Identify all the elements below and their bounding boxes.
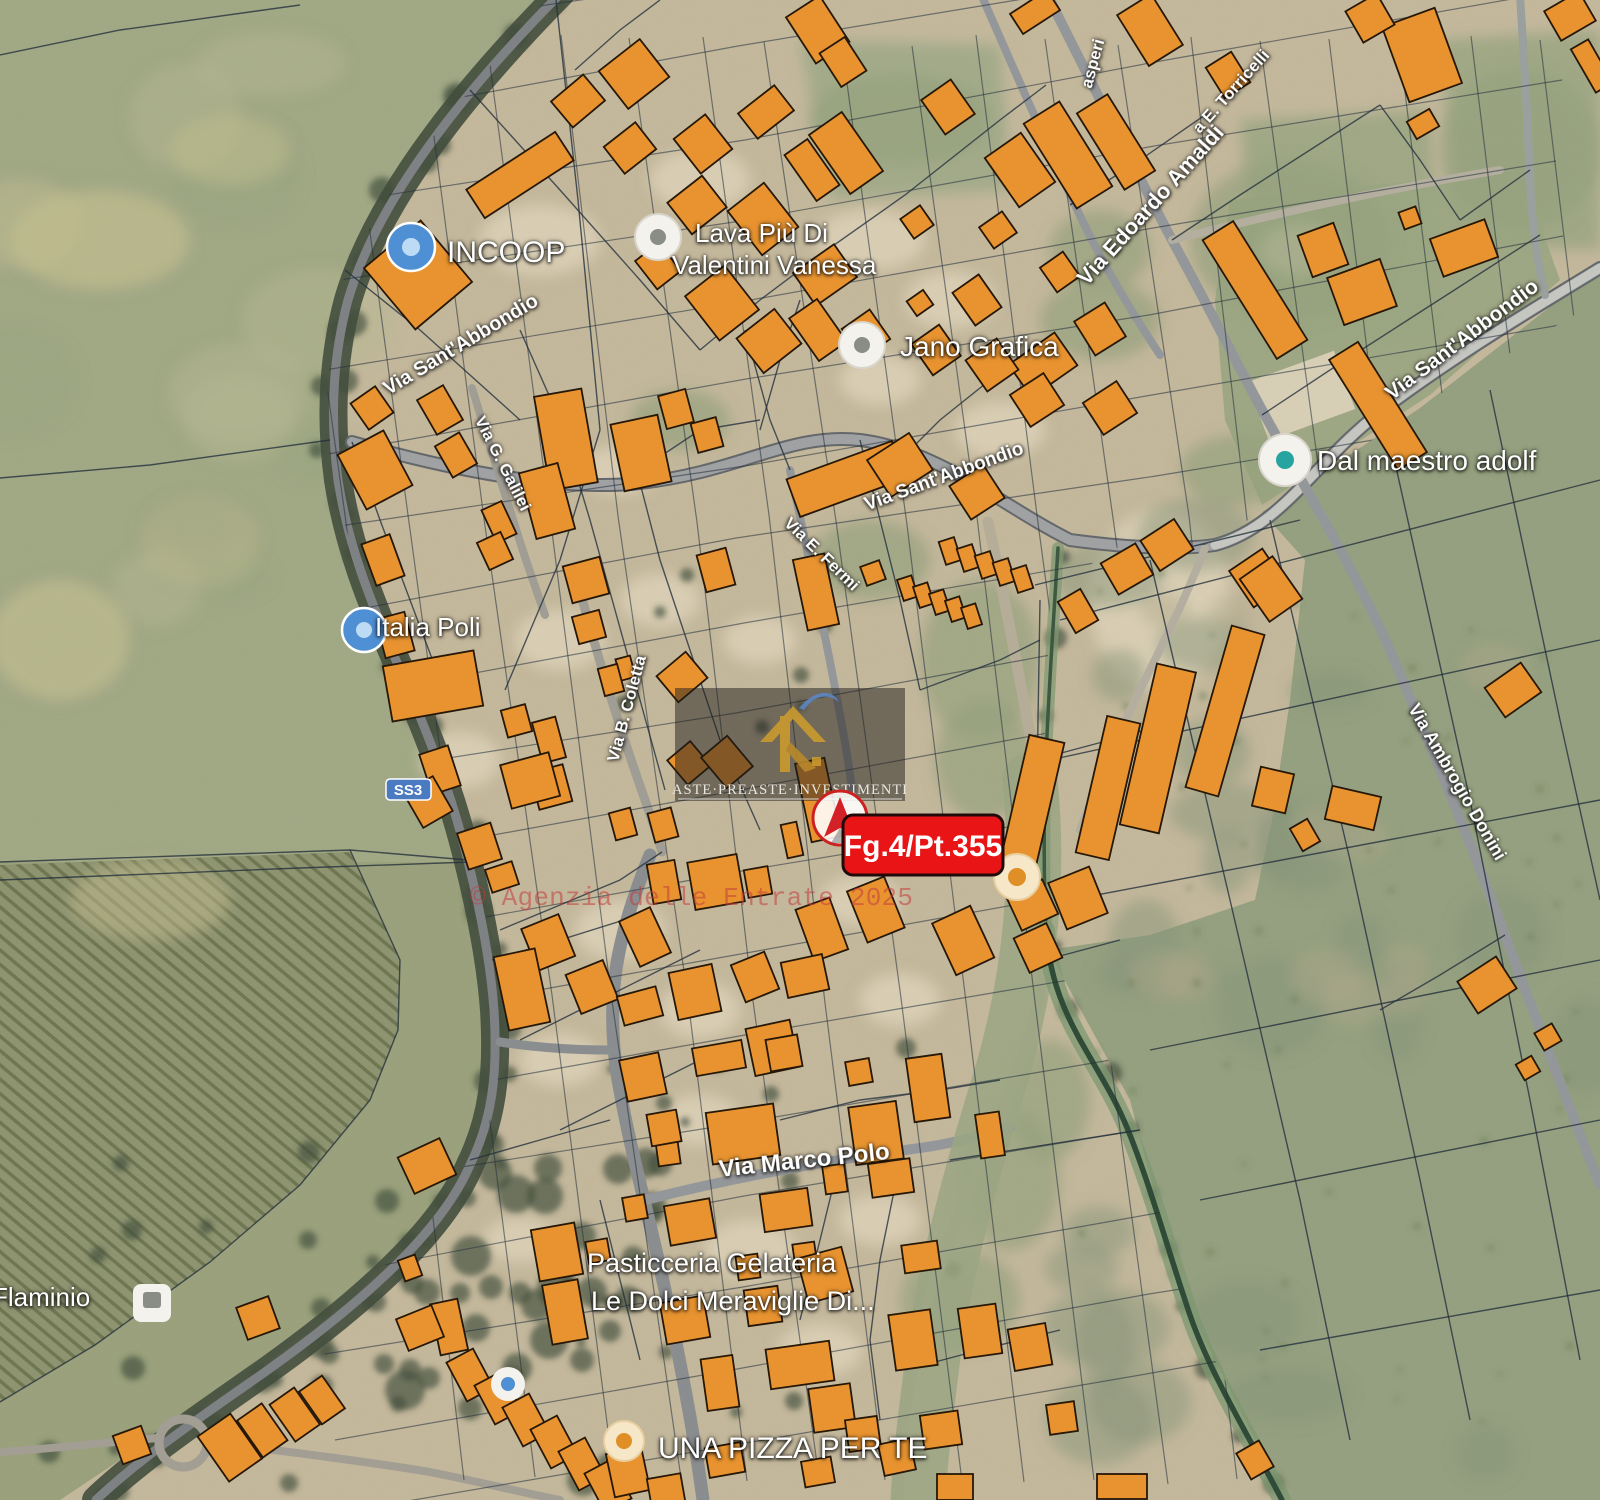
svg-text:Jano Grafica: Jano Grafica — [900, 331, 1059, 362]
svg-text:Valentini Vanessa: Valentini Vanessa — [672, 250, 877, 280]
svg-text:© Agenzia delle Entrate 2025: © Agenzia delle Entrate 2025 — [470, 883, 913, 913]
svg-text:Italia Poli: Italia Poli — [375, 612, 481, 642]
svg-text:UNA PIZZA PER TE: UNA PIZZA PER TE — [658, 1432, 928, 1465]
svg-text:INCOOP: INCOOP — [447, 236, 565, 269]
svg-text:Flaminio: Flaminio — [0, 1282, 90, 1312]
svg-text:SS3: SS3 — [394, 782, 422, 799]
svg-text:Lava Più Di: Lava Più Di — [695, 218, 828, 248]
svg-text:ASTE·PREASTE·INVESTIMENTI: ASTE·PREASTE·INVESTIMENTI — [672, 782, 908, 798]
svg-text:Le Dolci Meraviglie Di...: Le Dolci Meraviglie Di... — [591, 1286, 875, 1316]
svg-text:Dal maestro adolf: Dal maestro adolf — [1317, 445, 1537, 476]
svg-text:Fg.4/Pt.355: Fg.4/Pt.355 — [844, 830, 1002, 863]
svg-text:Pasticceria Gelateria: Pasticceria Gelateria — [587, 1248, 837, 1278]
